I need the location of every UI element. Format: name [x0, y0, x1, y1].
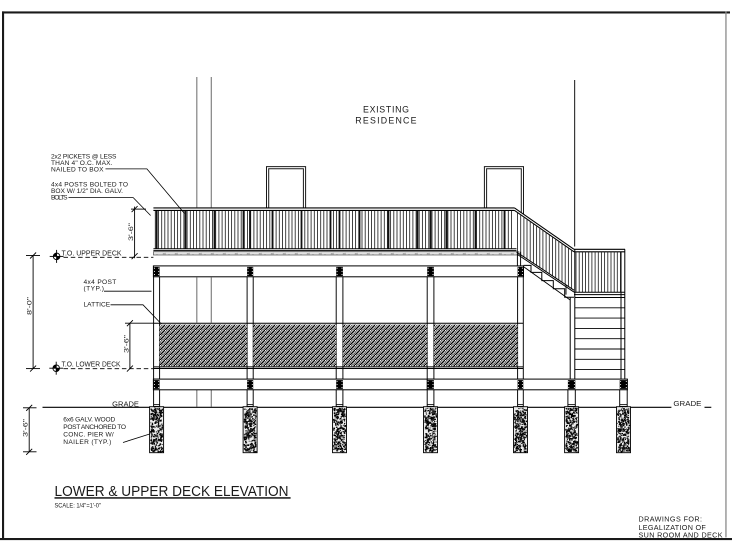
svg-text:8'-0": 8'-0" [27, 297, 34, 315]
svg-text:NAILER (TYP.): NAILER (TYP.) [63, 439, 111, 446]
svg-text:3'-6": 3'-6" [123, 335, 130, 353]
svg-text:BOLTS: BOLTS [51, 194, 68, 201]
svg-text:3'-6": 3'-6" [23, 419, 30, 437]
svg-text:(TYP.): (TYP.) [84, 286, 105, 293]
svg-text:CONC. PIER W/: CONC. PIER W/ [63, 432, 114, 439]
svg-text:GRADE: GRADE [673, 399, 701, 408]
svg-text:RESIDENCE: RESIDENCE [355, 115, 416, 125]
svg-text:T.O. LOWER DECK: T.O. LOWER DECK [62, 362, 121, 369]
svg-text:POST ANCHORED TO: POST ANCHORED TO [63, 424, 126, 431]
svg-text:SCALE: 1/4"=1'-0": SCALE: 1/4"=1'-0" [55, 502, 102, 509]
svg-text:NAILED TO BOX: NAILED TO BOX [51, 166, 104, 173]
svg-text:DRAWINGS FOR:: DRAWINGS FOR: [639, 514, 703, 523]
svg-text:T.O. UPPER DECK: T.O. UPPER DECK [62, 250, 122, 257]
svg-text:6x6 GALV. WOOD: 6x6 GALV. WOOD [63, 416, 115, 423]
svg-text:LATTICE: LATTICE [84, 302, 111, 309]
svg-text:3'-6": 3'-6" [128, 223, 135, 241]
svg-text:GRADE: GRADE [112, 400, 139, 409]
svg-text:SUN ROOM AND DECK: SUN ROOM AND DECK [639, 530, 723, 539]
svg-text:EXISTING: EXISTING [363, 105, 409, 115]
